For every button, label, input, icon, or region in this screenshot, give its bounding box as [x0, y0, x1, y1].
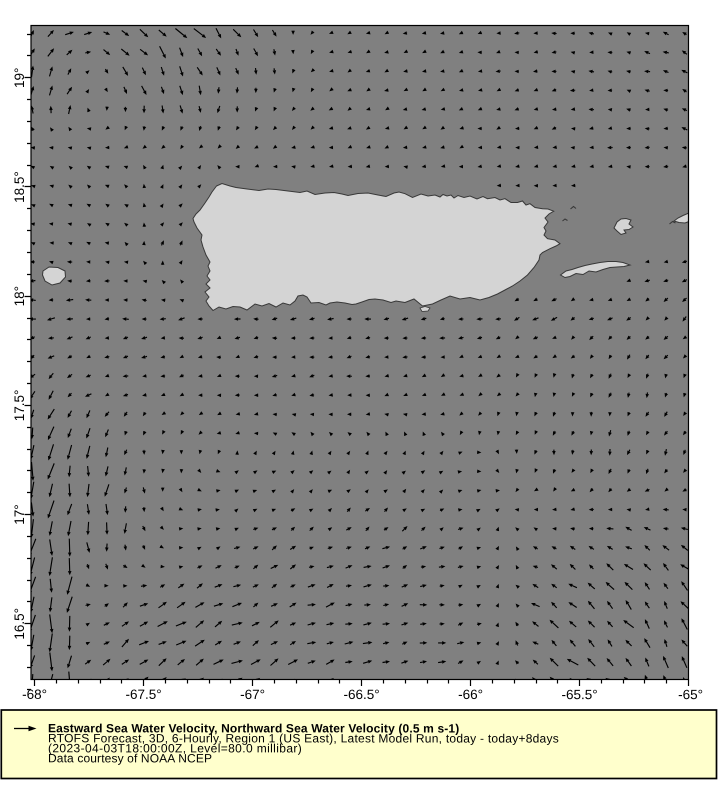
- svg-text:18°: 18°: [12, 286, 27, 306]
- svg-text:-67.5°: -67.5°: [126, 687, 162, 702]
- svg-text:17.5°: 17.5°: [12, 390, 27, 422]
- svg-text:-65°: -65°: [678, 687, 703, 702]
- svg-text:Data courtesy of NOAA NCEP: Data courtesy of NOAA NCEP: [48, 751, 212, 765]
- svg-text:-68°: -68°: [22, 687, 47, 702]
- svg-text:-65.5°: -65.5°: [562, 687, 598, 702]
- svg-text:18.5°: 18.5°: [12, 171, 27, 203]
- svg-text:-67°: -67°: [240, 687, 265, 702]
- svg-text:-66.5°: -66.5°: [344, 687, 380, 702]
- svg-text:17°: 17°: [12, 504, 27, 524]
- svg-text:16.5°: 16.5°: [12, 608, 27, 640]
- svg-text:-66°: -66°: [458, 687, 483, 702]
- svg-text:19°: 19°: [12, 68, 27, 88]
